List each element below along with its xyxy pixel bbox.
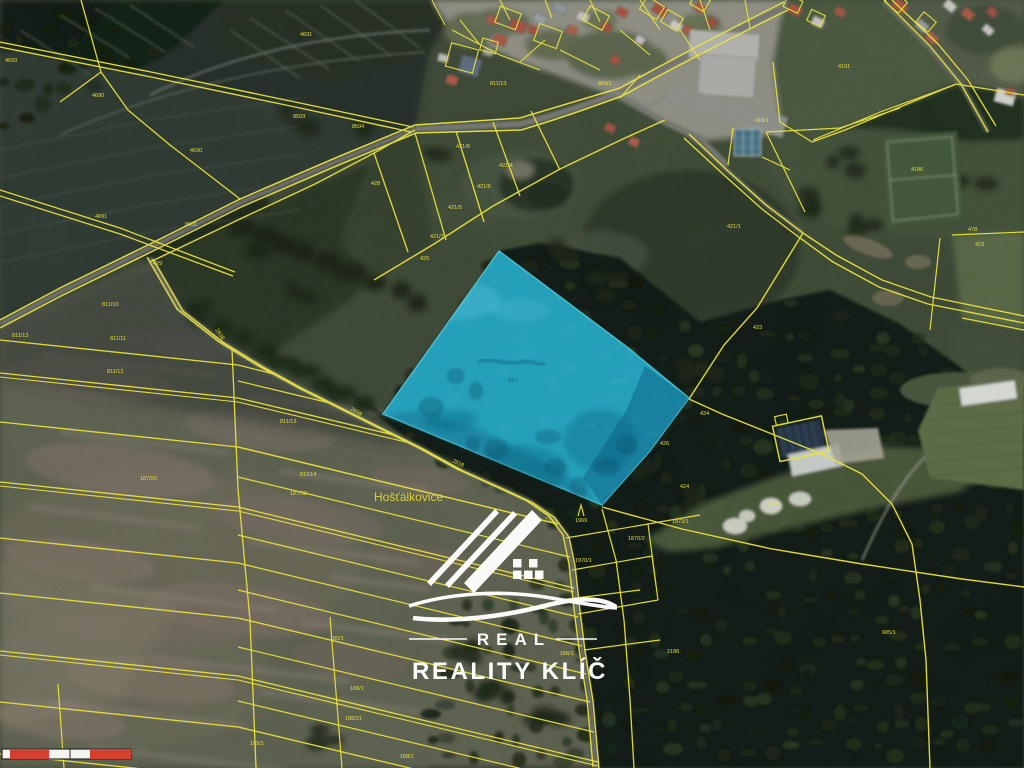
svg-text:421/7: 421/7: [430, 234, 444, 240]
svg-text:859/1: 859/1: [598, 81, 612, 87]
svg-text:Hošťálkovice: Hošťálkovice: [374, 490, 444, 504]
svg-text:188/21: 188/21: [345, 716, 362, 722]
svg-text:188/1: 188/1: [350, 686, 364, 692]
svg-text:418/1: 418/1: [755, 118, 769, 124]
svg-text:2188: 2188: [667, 649, 679, 655]
svg-text:1873/1: 1873/1: [672, 519, 689, 525]
svg-text:1970/1: 1970/1: [575, 558, 592, 564]
svg-text:1870/2: 1870/2: [628, 536, 645, 542]
svg-text:185/1: 185/1: [330, 636, 344, 642]
svg-text:421/6: 421/6: [477, 184, 491, 190]
svg-text:427: 427: [508, 378, 519, 384]
svg-text:186/1: 186/1: [560, 651, 574, 657]
svg-text:694: 694: [770, 501, 779, 507]
svg-text:811/13: 811/13: [12, 333, 28, 339]
svg-text:185/1: 185/1: [250, 741, 264, 747]
svg-text:REALITY KLÍČ: REALITY KLÍČ: [412, 657, 608, 685]
svg-text:429: 429: [153, 261, 162, 267]
svg-text:4690: 4690: [92, 93, 104, 99]
svg-text:478: 478: [968, 227, 977, 233]
svg-text:425: 425: [420, 256, 429, 262]
svg-text:1969: 1969: [575, 518, 587, 524]
svg-text:4693: 4693: [5, 58, 17, 64]
svg-text:685/1: 685/1: [882, 630, 896, 636]
svg-text:188/1: 188/1: [400, 754, 414, 760]
svg-text:811/10: 811/10: [102, 302, 118, 308]
svg-text:8503: 8503: [293, 114, 305, 120]
svg-text:811/14: 811/14: [300, 472, 316, 478]
svg-text:4691: 4691: [300, 32, 312, 38]
svg-text:811/11: 811/11: [110, 336, 126, 342]
svg-text:421/5: 421/5: [448, 205, 462, 211]
svg-text:811/13: 811/13: [490, 81, 506, 87]
svg-text:428: 428: [371, 181, 380, 187]
svg-text:421/1: 421/1: [727, 224, 741, 230]
svg-text:REAL: REAL: [477, 630, 551, 649]
svg-text:4191: 4191: [838, 64, 850, 70]
svg-text:434: 434: [700, 411, 709, 417]
svg-text:4690: 4690: [190, 148, 202, 154]
svg-text:811/13: 811/13: [280, 419, 296, 425]
svg-text:4691: 4691: [95, 214, 107, 220]
svg-text:187/32: 187/32: [290, 491, 307, 497]
svg-text:423: 423: [975, 242, 984, 248]
svg-text:421/8: 421/8: [456, 144, 470, 150]
svg-text:424: 424: [680, 484, 689, 490]
svg-text:4186: 4186: [911, 167, 923, 173]
svg-text:8501: 8501: [185, 222, 197, 228]
svg-text:811/12: 811/12: [107, 369, 123, 375]
svg-text:426: 426: [660, 441, 669, 447]
svg-text:421/4: 421/4: [499, 163, 513, 169]
svg-text:423: 423: [753, 325, 762, 331]
svg-text:187/20: 187/20: [140, 476, 157, 482]
svg-text:8504: 8504: [352, 124, 364, 130]
